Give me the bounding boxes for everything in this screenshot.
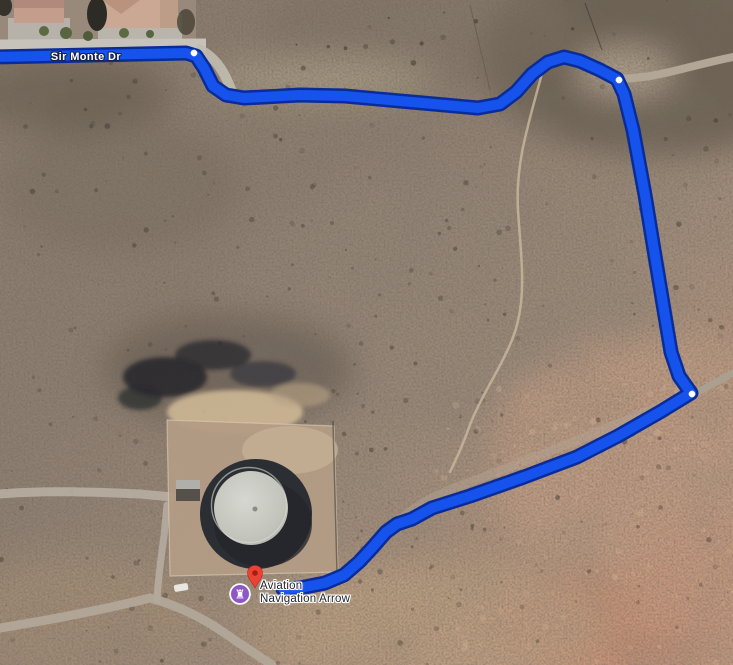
rook-glyph: ♜ — [234, 587, 245, 602]
poi-label-line1: Aviation — [260, 580, 350, 593]
poi-marker-monument[interactable]: ♜ — [229, 583, 251, 605]
poi-label-line2: Navigation Arrow — [260, 593, 350, 606]
poi-label-aviation-navigation-arrow[interactable]: Aviation Navigation Arrow — [260, 580, 350, 605]
map-canvas[interactable]: ♜ Sir Monte Dr Aviation Navigation Arrow — [0, 0, 733, 665]
pin-center-dot — [252, 570, 258, 576]
